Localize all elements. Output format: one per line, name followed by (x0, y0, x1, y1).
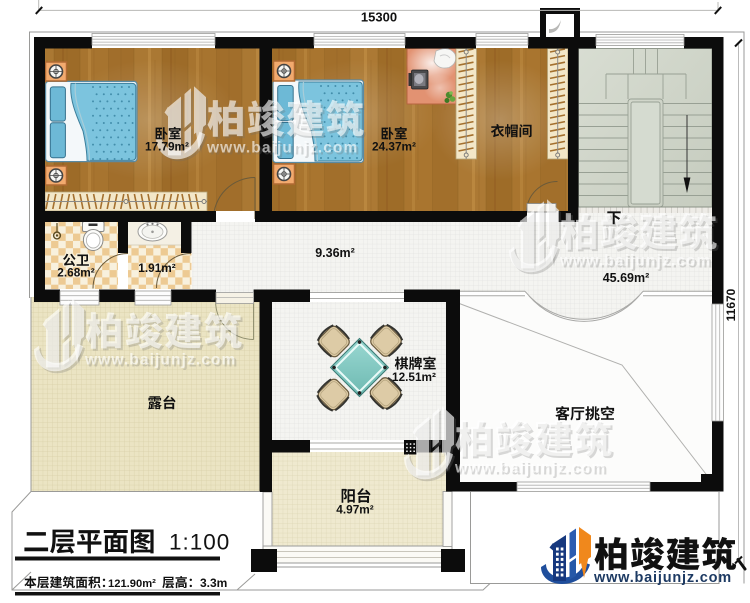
svg-text:11670: 11670 (724, 288, 738, 321)
svg-text:www.baijunjz.com: www.baijunjz.com (454, 460, 606, 477)
svg-text:2.68m²: 2.68m² (57, 266, 94, 280)
svg-text:www.baijunjz.com: www.baijunjz.com (593, 570, 732, 586)
svg-text:24.37m²: 24.37m² (372, 140, 416, 154)
svg-text:www.baijunjz.com: www.baijunjz.com (559, 253, 711, 270)
svg-text:4.97m²: 4.97m² (336, 503, 373, 517)
svg-text:www.baijunjz.com: www.baijunjz.com (206, 140, 358, 157)
svg-text:1:100: 1:100 (169, 530, 230, 555)
svg-text:1.91m²: 1.91m² (138, 261, 175, 275)
svg-text:121.90m²: 121.90m² (108, 578, 156, 590)
svg-text:12.51m²: 12.51m² (392, 370, 436, 384)
svg-text:3.3m: 3.3m (200, 576, 227, 590)
svg-text:9.36m²: 9.36m² (315, 246, 355, 260)
svg-text:15300: 15300 (361, 10, 397, 25)
svg-text:17.79m²: 17.79m² (145, 140, 189, 154)
svg-text:45.69m²: 45.69m² (603, 271, 650, 285)
svg-text:www.baijunjz.com: www.baijunjz.com (84, 352, 236, 369)
